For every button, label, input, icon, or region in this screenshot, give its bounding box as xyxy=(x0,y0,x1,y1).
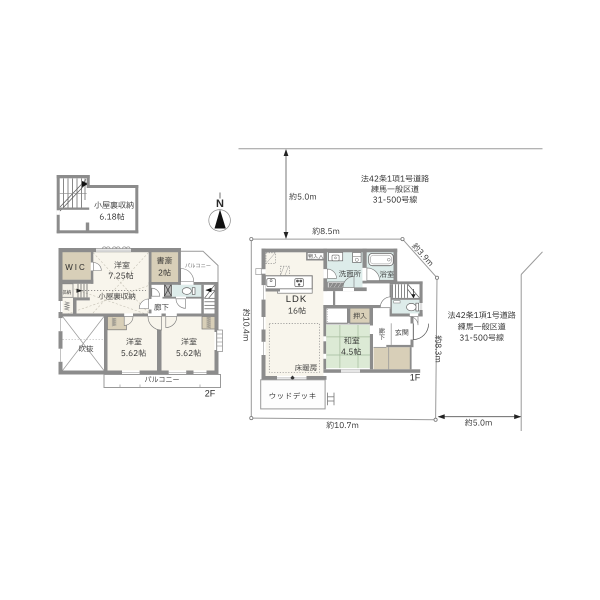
svg-text:WIC: WIC xyxy=(65,263,87,272)
svg-text:N: N xyxy=(216,198,224,210)
svg-text:LDK: LDK xyxy=(286,294,307,305)
svg-text:2F: 2F xyxy=(205,389,216,399)
svg-text:1F: 1F xyxy=(410,373,421,383)
